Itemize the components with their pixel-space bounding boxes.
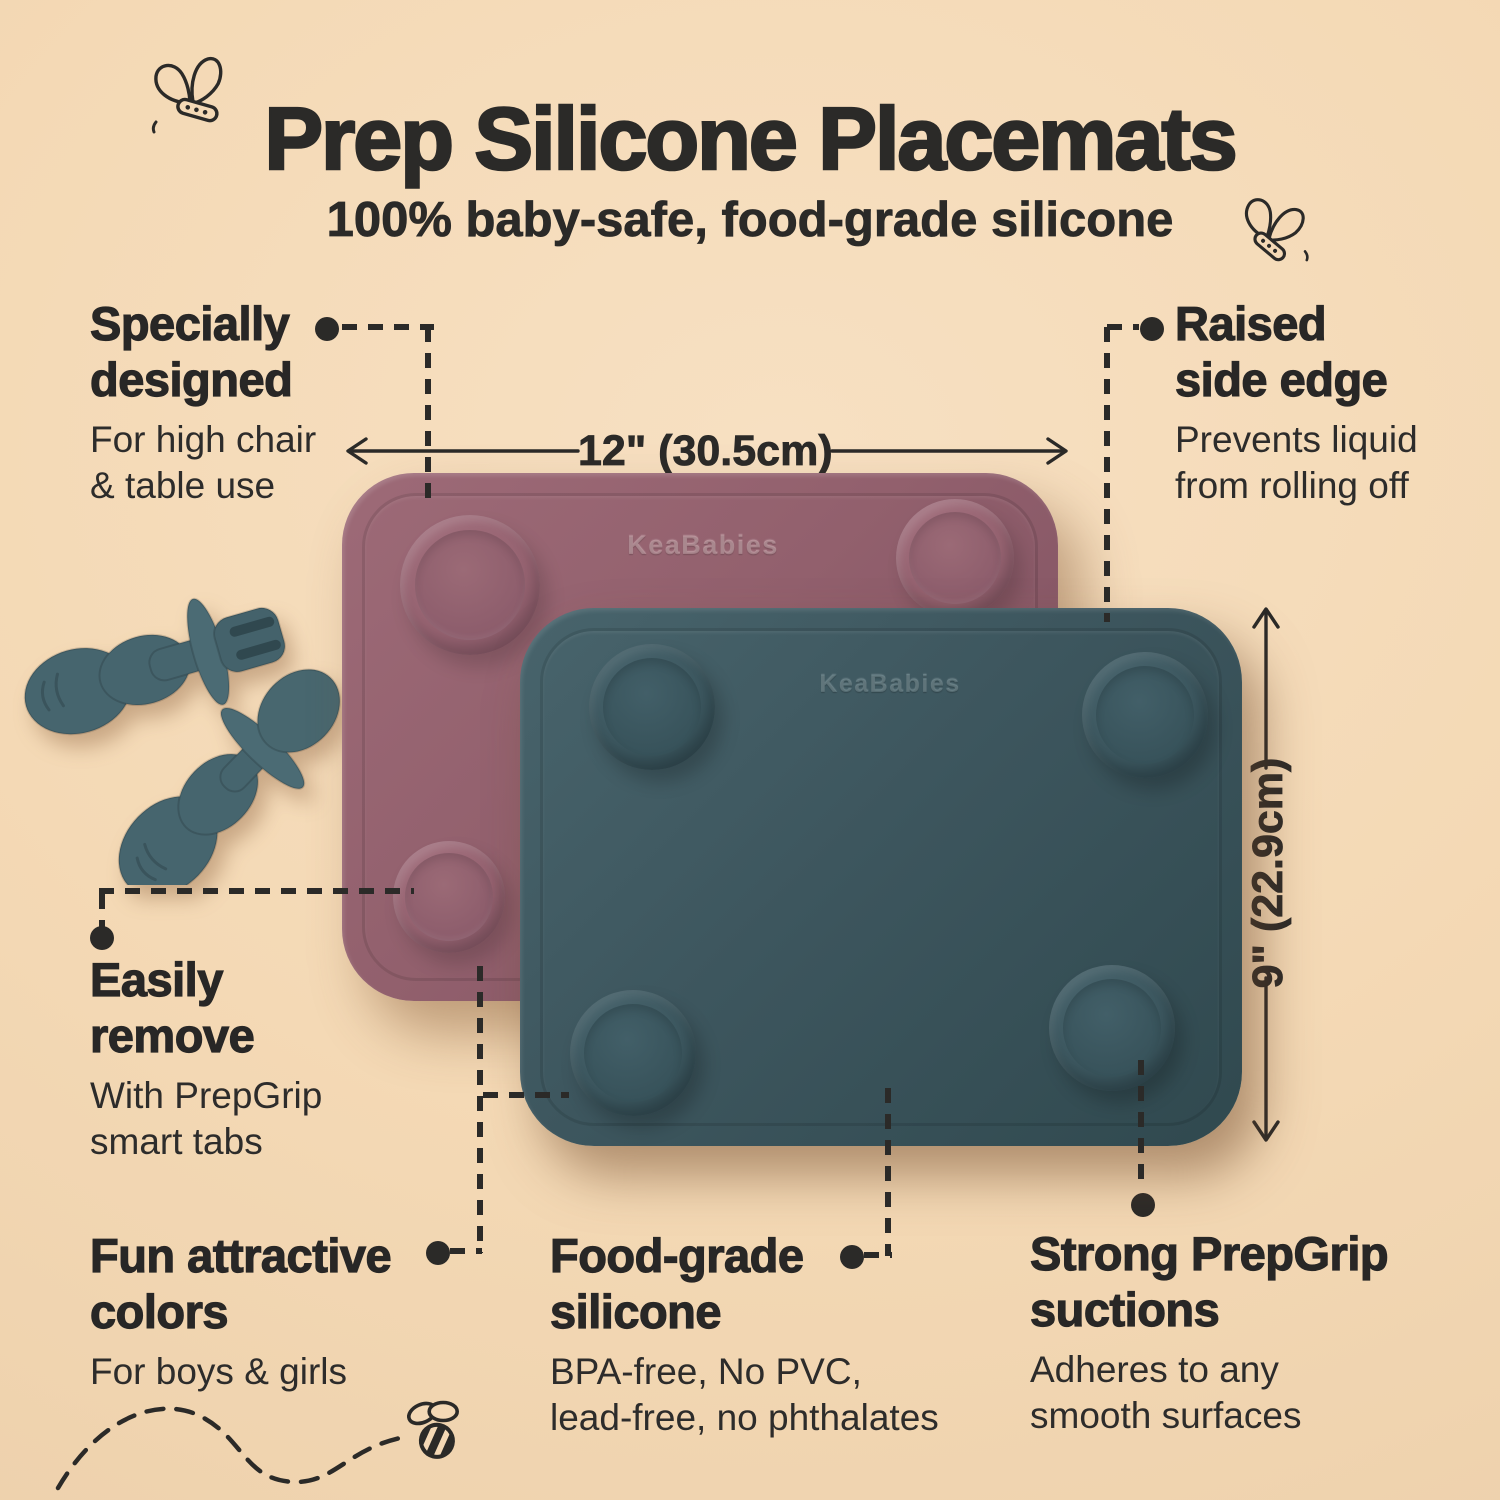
arrowhead-up-icon xyxy=(1254,609,1278,627)
feature-heading-line: Easily xyxy=(90,952,322,1008)
suction-cup xyxy=(400,515,540,655)
bee-icon xyxy=(392,1396,476,1474)
feature-body-line: smooth surfaces xyxy=(1030,1393,1388,1439)
callout-dot xyxy=(1140,317,1164,341)
feature-body-line: smart tabs xyxy=(90,1119,322,1165)
height-dimension-label: 9" (22.9cm) xyxy=(1244,721,1288,1025)
feature-specially-designed: Specially designed For high chair & tabl… xyxy=(90,296,316,509)
callout-connector xyxy=(1107,324,1139,330)
callout-connector xyxy=(483,1092,569,1098)
feature-heading-line: Specially xyxy=(90,296,316,352)
callout-connector xyxy=(477,966,483,1253)
page-subtitle: 100% baby-safe, food-grade silicone xyxy=(0,192,1500,248)
callout-connector xyxy=(99,894,105,928)
page-title: Prep Silicone Placemats xyxy=(0,88,1500,190)
callout-connector xyxy=(99,888,414,894)
suction-cup xyxy=(1049,965,1175,1091)
feature-heading-line: suctions xyxy=(1030,1282,1388,1338)
feature-body-line: Adheres to any xyxy=(1030,1347,1388,1393)
feature-fun-attractive-colors: Fun attractive colors For boys & girls xyxy=(90,1228,391,1395)
callout-connector xyxy=(1104,327,1110,622)
feature-body-line: & table use xyxy=(90,463,316,509)
baby-utensils-icon xyxy=(0,540,345,885)
suction-cup xyxy=(570,990,696,1116)
feature-body-line: With PrepGrip xyxy=(90,1073,322,1119)
product-infographic: Prep Silicone Placemats 100% baby-safe, … xyxy=(0,0,1500,1500)
feature-body-line: Prevents liquid xyxy=(1175,417,1418,463)
feature-strong-prepgrip-suctions: Strong PrepGrip suctions Adheres to any … xyxy=(1030,1226,1388,1439)
feature-food-grade-silicone: Food-grade silicone BPA-free, No PVC, le… xyxy=(550,1228,939,1441)
feature-body-line: from rolling off xyxy=(1175,463,1418,509)
width-dimension-label: 12" (30.5cm) xyxy=(578,427,832,476)
arrowhead-down-icon xyxy=(1254,1122,1278,1140)
callout-connector xyxy=(342,324,434,330)
callout-connector xyxy=(425,327,431,507)
feature-heading-line: silicone xyxy=(550,1284,939,1340)
feature-body-line: lead-free, no phthalates xyxy=(550,1395,939,1441)
suction-cup xyxy=(1082,652,1208,778)
arrowhead-right-icon xyxy=(1048,439,1066,463)
brand-logo: KeaBabies xyxy=(582,530,824,561)
feature-heading-line: designed xyxy=(90,352,316,408)
feature-heading-line: colors xyxy=(90,1284,391,1340)
feature-heading-line: Raised xyxy=(1175,296,1418,352)
callout-dot xyxy=(1131,1193,1155,1217)
feature-body-line: BPA-free, No PVC, xyxy=(550,1349,939,1395)
callout-connector xyxy=(1138,1060,1144,1190)
bee-flight-path xyxy=(52,1388,462,1500)
arrowhead-left-icon xyxy=(348,439,366,463)
feature-heading-line: remove xyxy=(90,1008,322,1064)
feature-easily-remove: Easily remove With PrepGrip smart tabs xyxy=(90,952,322,1165)
feature-heading-line: Strong PrepGrip xyxy=(1030,1226,1388,1282)
callout-dot xyxy=(840,1245,864,1269)
suction-cup xyxy=(896,499,1014,617)
placemat-teal: KeaBabies xyxy=(520,608,1242,1146)
callout-dot xyxy=(90,926,114,950)
callout-dot xyxy=(315,317,339,341)
feature-body-line: For high chair xyxy=(90,417,316,463)
feature-heading-line: Fun attractive xyxy=(90,1228,391,1284)
callout-dot xyxy=(426,1241,450,1265)
feature-body-line: For boys & girls xyxy=(90,1349,391,1395)
suction-cup xyxy=(589,644,715,770)
brand-logo: KeaBabies xyxy=(770,670,1010,699)
feature-raised-side-edge: Raised side edge Prevents liquid from ro… xyxy=(1175,296,1418,509)
feature-heading-line: side edge xyxy=(1175,352,1418,408)
callout-connector xyxy=(885,1088,891,1256)
suction-cup xyxy=(393,841,505,953)
